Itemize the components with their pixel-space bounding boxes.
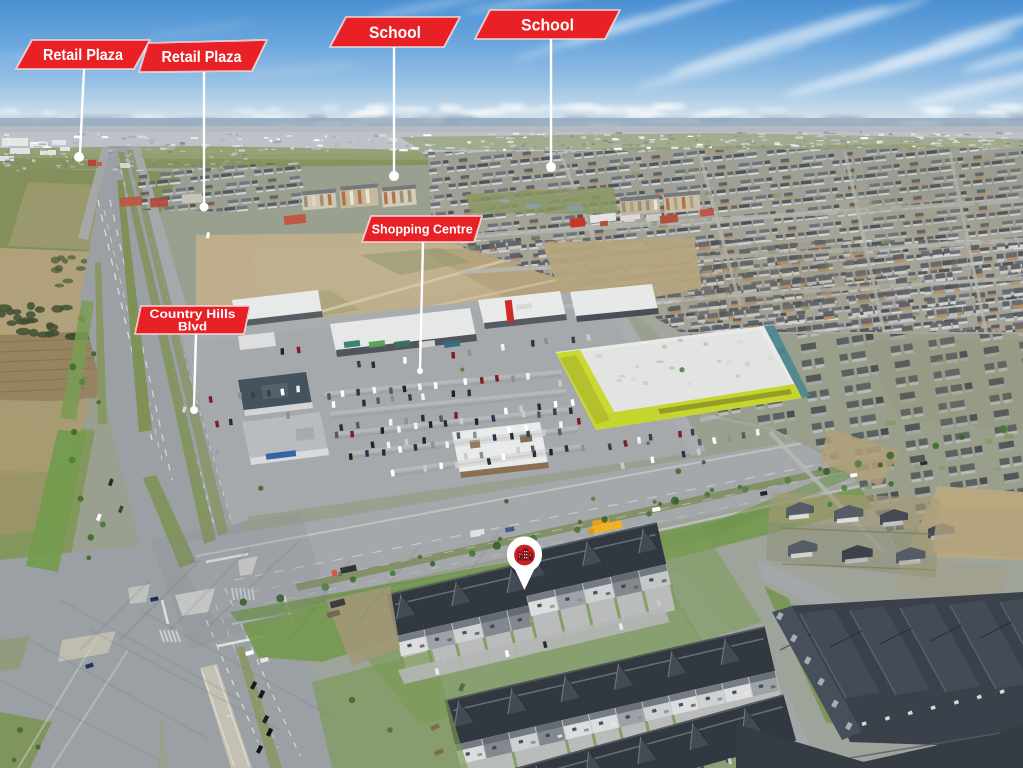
svg-text:Country Hills: Country Hills (150, 309, 236, 321)
svg-text:Blvd: Blvd (178, 321, 207, 333)
svg-text:Retail Plaza: Retail Plaza (162, 49, 242, 66)
svg-text:School: School (521, 16, 574, 34)
svg-text:School: School (369, 24, 421, 42)
svg-text:Retail Plaza: Retail Plaza (43, 47, 123, 64)
svg-text:Shopping Centre: Shopping Centre (372, 223, 473, 237)
